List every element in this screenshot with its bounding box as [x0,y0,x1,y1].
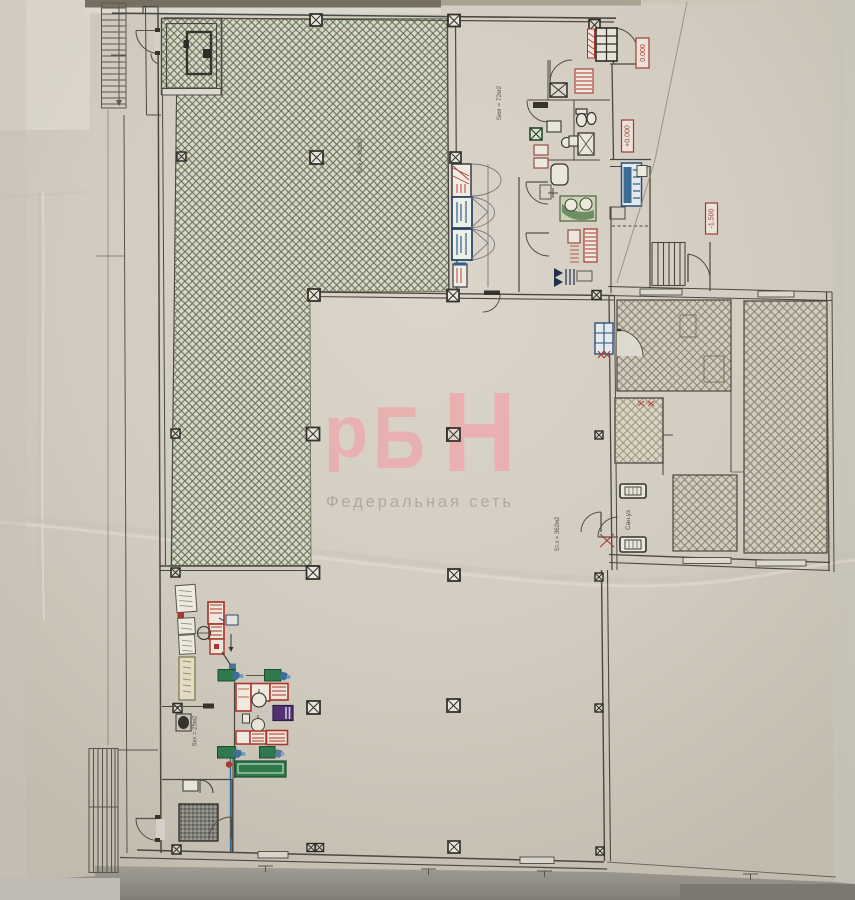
svg-text:-1.500: -1.500 [709,208,716,228]
svg-text:0.000: 0.000 [640,44,647,62]
svg-text:Б: Б [373,388,425,487]
svg-text:Федеральная сеть: Федеральная сеть [326,493,514,511]
svg-text:Sкм = 72м2: Sкм = 72м2 [496,85,503,120]
svg-text:Сан.уз: Сан.уз [625,510,632,530]
svg-text:+0.000: +0.000 [625,125,632,147]
svg-text:Sт.з = 362м2: Sт.з = 362м2 [358,138,364,173]
svg-text:Sкх = 25м2: Sкх = 25м2 [193,715,199,746]
svg-text:р: р [324,392,368,473]
svg-text:Sт.з = 362м2: Sт.з = 362м2 [555,516,561,551]
